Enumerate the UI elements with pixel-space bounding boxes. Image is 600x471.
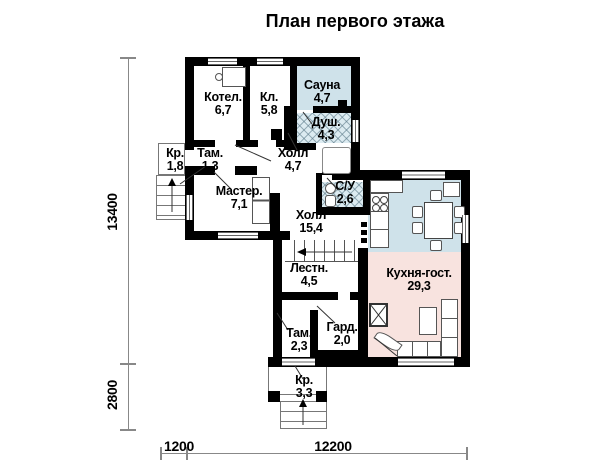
room-label-closet: Кл.5,8 bbox=[260, 91, 278, 116]
wall-closet-sauna bbox=[290, 66, 297, 143]
porch-post-right bbox=[316, 391, 327, 402]
kitchen-counter-left bbox=[370, 193, 389, 248]
wall-left-upper bbox=[185, 57, 194, 150]
wall-mid-b bbox=[235, 166, 257, 175]
wall-stairs-bottom-a bbox=[282, 292, 338, 300]
wall-dash bbox=[361, 230, 367, 235]
boiler-knob bbox=[215, 73, 223, 81]
window-boiler bbox=[208, 58, 237, 65]
wall-master-right bbox=[270, 193, 280, 231]
kitchen-counter-top bbox=[370, 180, 403, 193]
dim-height-porch: 2800 bbox=[104, 378, 120, 412]
dim-height-main: 13400 bbox=[104, 191, 120, 233]
dim-tick bbox=[120, 429, 136, 431]
room-label-wardrobe: Гард.2,0 bbox=[326, 321, 357, 346]
window-kitchen-top bbox=[402, 171, 445, 179]
wall-column-left bbox=[273, 235, 282, 365]
window-living-bottom bbox=[398, 358, 454, 366]
plan-title: План первого этажа bbox=[255, 11, 455, 32]
room-label-stairs: Лестн.4,5 bbox=[290, 262, 328, 287]
room-label-porch-left: Кр.1,8 bbox=[166, 147, 184, 172]
room-label-tambour-lower: Там.2,3 bbox=[286, 327, 312, 352]
flue-block bbox=[271, 129, 282, 140]
dim-tick bbox=[466, 447, 468, 460]
porch-bottom-steps bbox=[280, 401, 327, 429]
room-label-master: Мастер.7,1 bbox=[216, 185, 263, 210]
room-label-tambour-upper: Там.1,3 bbox=[197, 147, 223, 172]
window-master-bottom bbox=[218, 232, 258, 239]
chair bbox=[430, 240, 442, 251]
chair bbox=[412, 222, 423, 234]
porch-left-steps bbox=[156, 175, 188, 220]
window-closet bbox=[257, 58, 283, 65]
room-label-wc: С/У2,6 bbox=[335, 180, 354, 205]
room-label-hall-main: Холл15,4 bbox=[296, 209, 326, 234]
porch-post-left bbox=[268, 391, 280, 402]
wall-right-outer bbox=[461, 170, 470, 367]
floor-plan: План первого этажа 13400 2800 1200 12200 bbox=[0, 0, 600, 471]
staircase-steps bbox=[285, 240, 360, 262]
coffee-table bbox=[419, 307, 437, 335]
dim-width-porch: 1200 bbox=[156, 438, 202, 454]
boiler-unit bbox=[222, 67, 246, 87]
shower-tray bbox=[322, 147, 351, 174]
room-label-hall-upper: Холл4,7 bbox=[278, 147, 308, 172]
window-kitchen-right bbox=[462, 215, 469, 243]
chair bbox=[430, 190, 442, 201]
entrance-door bbox=[282, 358, 315, 366]
wall-right-upper bbox=[351, 57, 360, 178]
window-shower bbox=[352, 120, 359, 142]
room-label-boiler: Котел.6,7 bbox=[204, 91, 242, 116]
window-master-left bbox=[186, 195, 193, 220]
dim-width-main: 12200 bbox=[305, 438, 361, 454]
wall-below-boiler-b bbox=[236, 140, 258, 147]
room-label-porch-bottom: Кр.3,3 bbox=[295, 374, 313, 399]
dim-line-vertical bbox=[128, 58, 129, 430]
sofa-right bbox=[441, 299, 458, 357]
dining-table bbox=[424, 202, 453, 239]
room-label-kitchen-living: Кухня-гост.29,3 bbox=[386, 267, 451, 292]
sofa-bottom bbox=[397, 341, 441, 357]
chair bbox=[412, 206, 423, 218]
wall-dash bbox=[361, 238, 367, 243]
kitchen-cabinet bbox=[443, 182, 460, 197]
fireplace bbox=[369, 303, 388, 327]
dim-tick bbox=[120, 57, 136, 59]
wall-dash bbox=[361, 222, 367, 227]
dim-tick bbox=[120, 363, 136, 365]
room-label-sauna: Сауна4,7 bbox=[304, 79, 340, 104]
room-label-shower: Душ.4,3 bbox=[312, 116, 341, 141]
wall-living-left bbox=[358, 248, 368, 360]
